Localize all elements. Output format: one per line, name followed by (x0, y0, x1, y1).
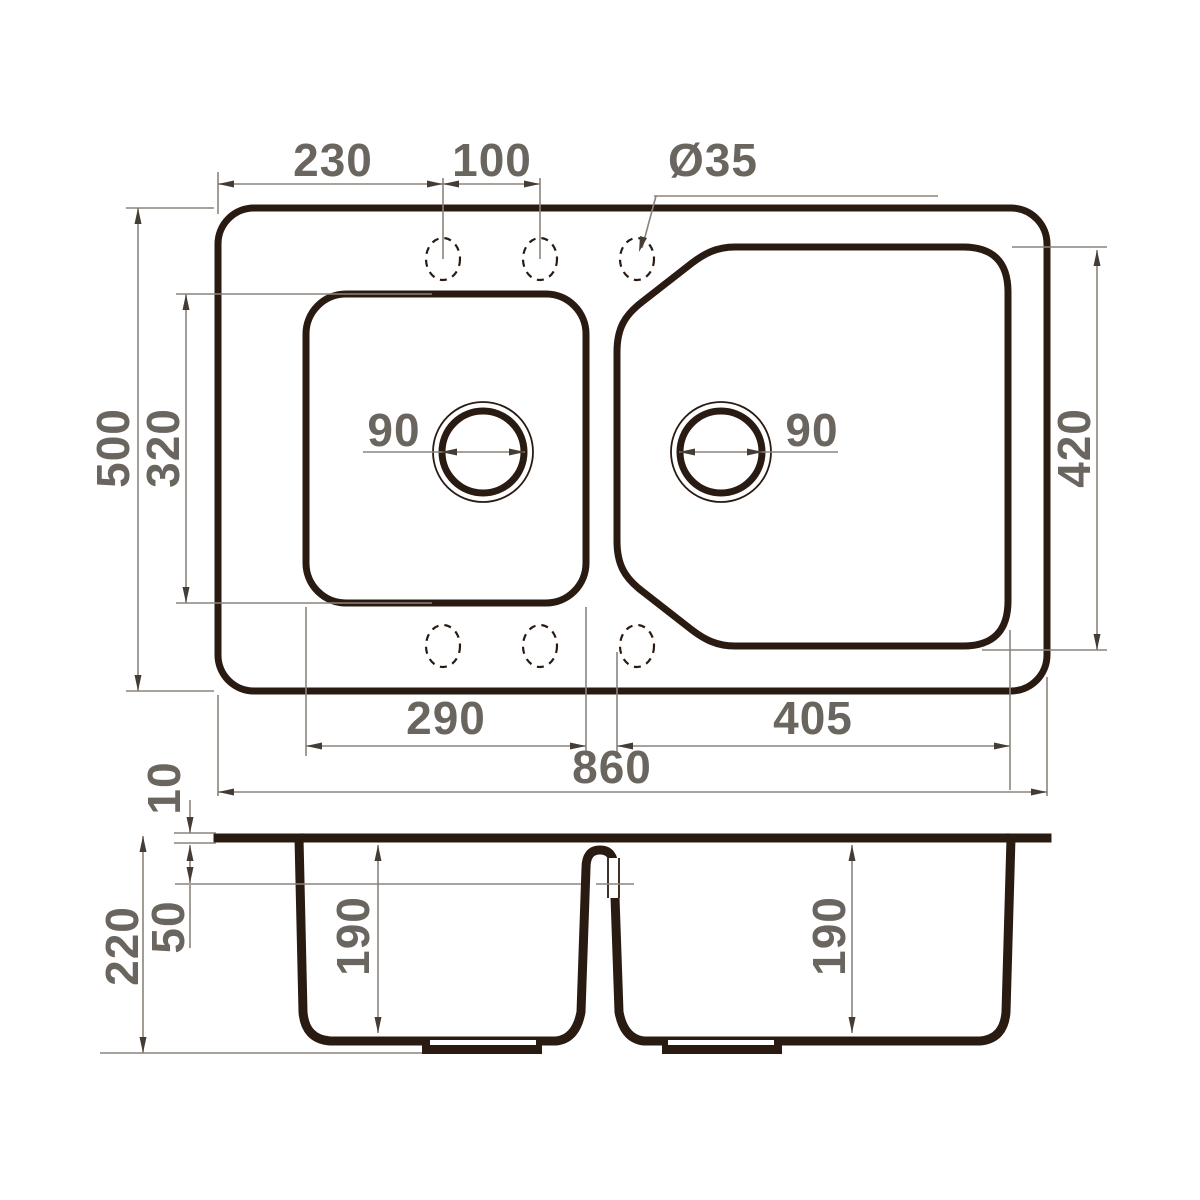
tap-hole-bottom-3 (620, 625, 654, 667)
section-view: 10 50 220 190 190 (96, 761, 1047, 1054)
dim-rim-to-overflow: 50 (142, 900, 194, 953)
dim-left-bowl-depth: 190 (327, 896, 379, 976)
dim-tap-hole-offset: 230 (293, 134, 373, 186)
left-bowl-outline (306, 294, 586, 603)
tap-hole-bottom-2 (523, 625, 557, 667)
sink-outer-outline (218, 208, 1047, 691)
dim-tap-hole-spacing: 100 (452, 134, 532, 186)
dim-left-bowl-height: 320 (137, 408, 189, 488)
divider-overflow-window (608, 858, 619, 898)
dim-overall-width: 860 (572, 741, 652, 793)
dim-left-drain-diameter: 90 (367, 404, 420, 456)
tap-hole-bottom-1 (426, 625, 460, 667)
dim-overall-height: 500 (87, 408, 139, 488)
left-drain-fitting (422, 1040, 542, 1054)
dim-right-bowl-width: 405 (773, 692, 853, 744)
section-bowl-profile (299, 838, 1011, 1041)
technical-drawing-canvas: 230 100 Ø35 500 320 420 90 90 290 405 86… (0, 0, 1200, 1200)
dim-tap-hole-diameter: Ø35 (668, 134, 758, 186)
sink-drawing-svg: 230 100 Ø35 500 320 420 90 90 290 405 86… (0, 0, 1200, 1200)
tap-hole-top-3 (620, 238, 654, 280)
dim-right-bowl-height: 420 (1048, 408, 1100, 488)
section-arrowheads (140, 817, 856, 1053)
top-view: 230 100 Ø35 500 320 420 90 90 290 405 86… (87, 134, 1107, 796)
dim-right-bowl-depth: 190 (803, 896, 855, 976)
right-drain-fitting (662, 1040, 782, 1054)
dim-left-bowl-width: 290 (406, 692, 486, 744)
dim-rim-height: 10 (138, 761, 190, 814)
dim-right-drain-diameter: 90 (785, 404, 838, 456)
dim-overall-depth: 220 (96, 906, 148, 986)
